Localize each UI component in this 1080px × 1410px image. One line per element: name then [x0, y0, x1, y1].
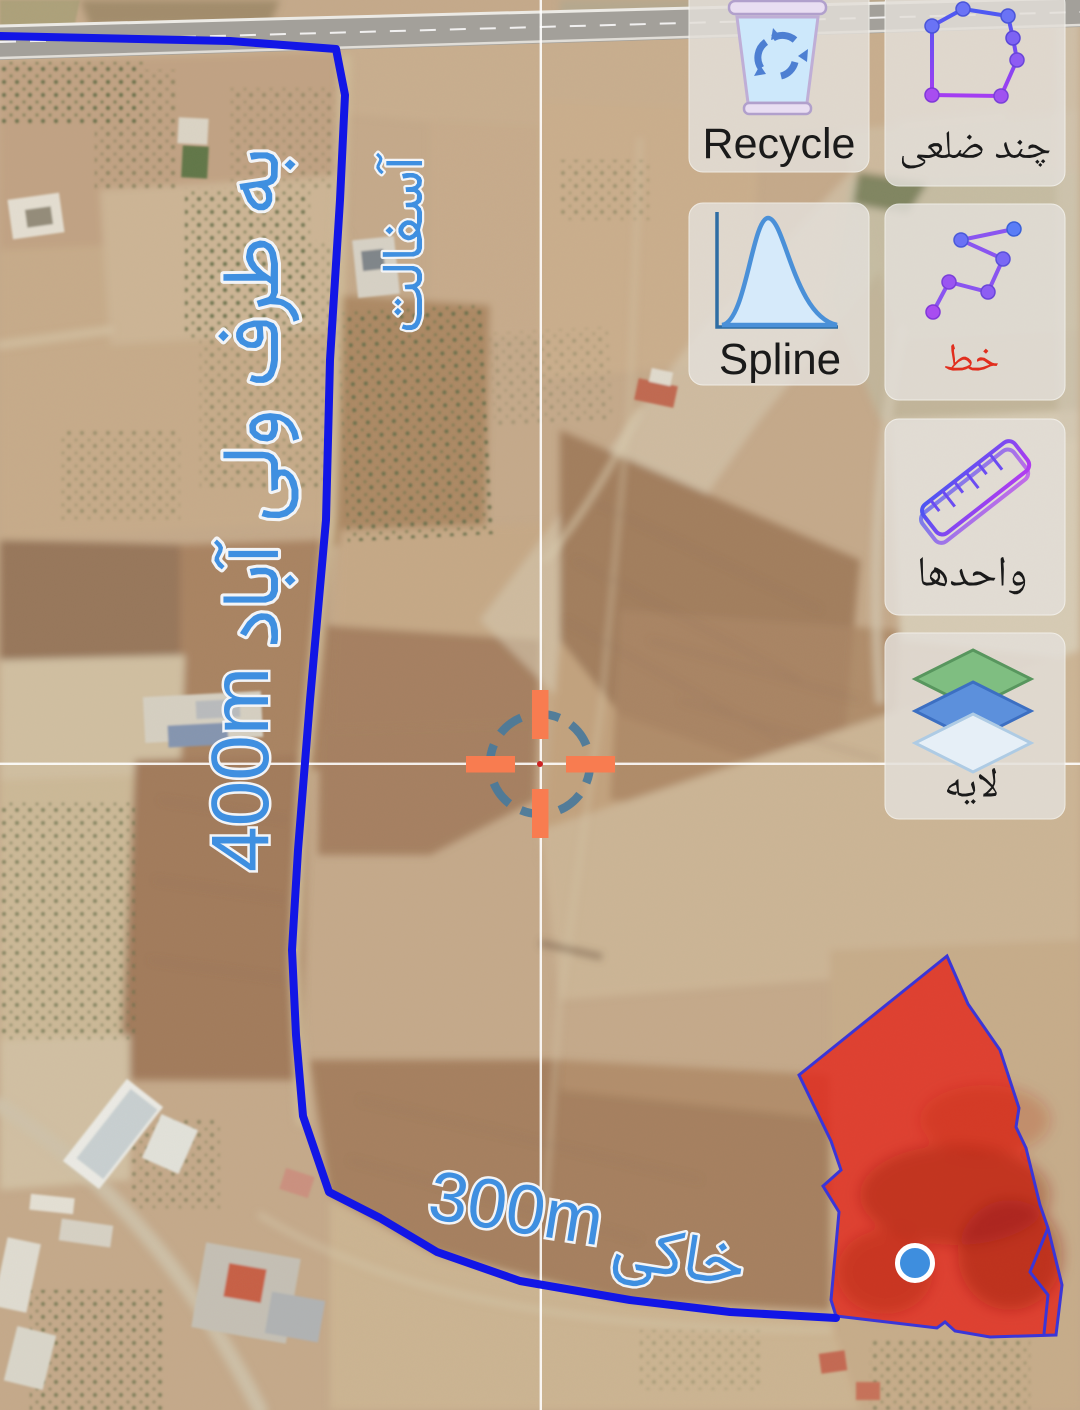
svg-text:400m: 400m [195, 667, 286, 872]
svg-text:Recycle: Recycle [703, 120, 856, 168]
svg-text:Spline: Spline [719, 335, 841, 384]
